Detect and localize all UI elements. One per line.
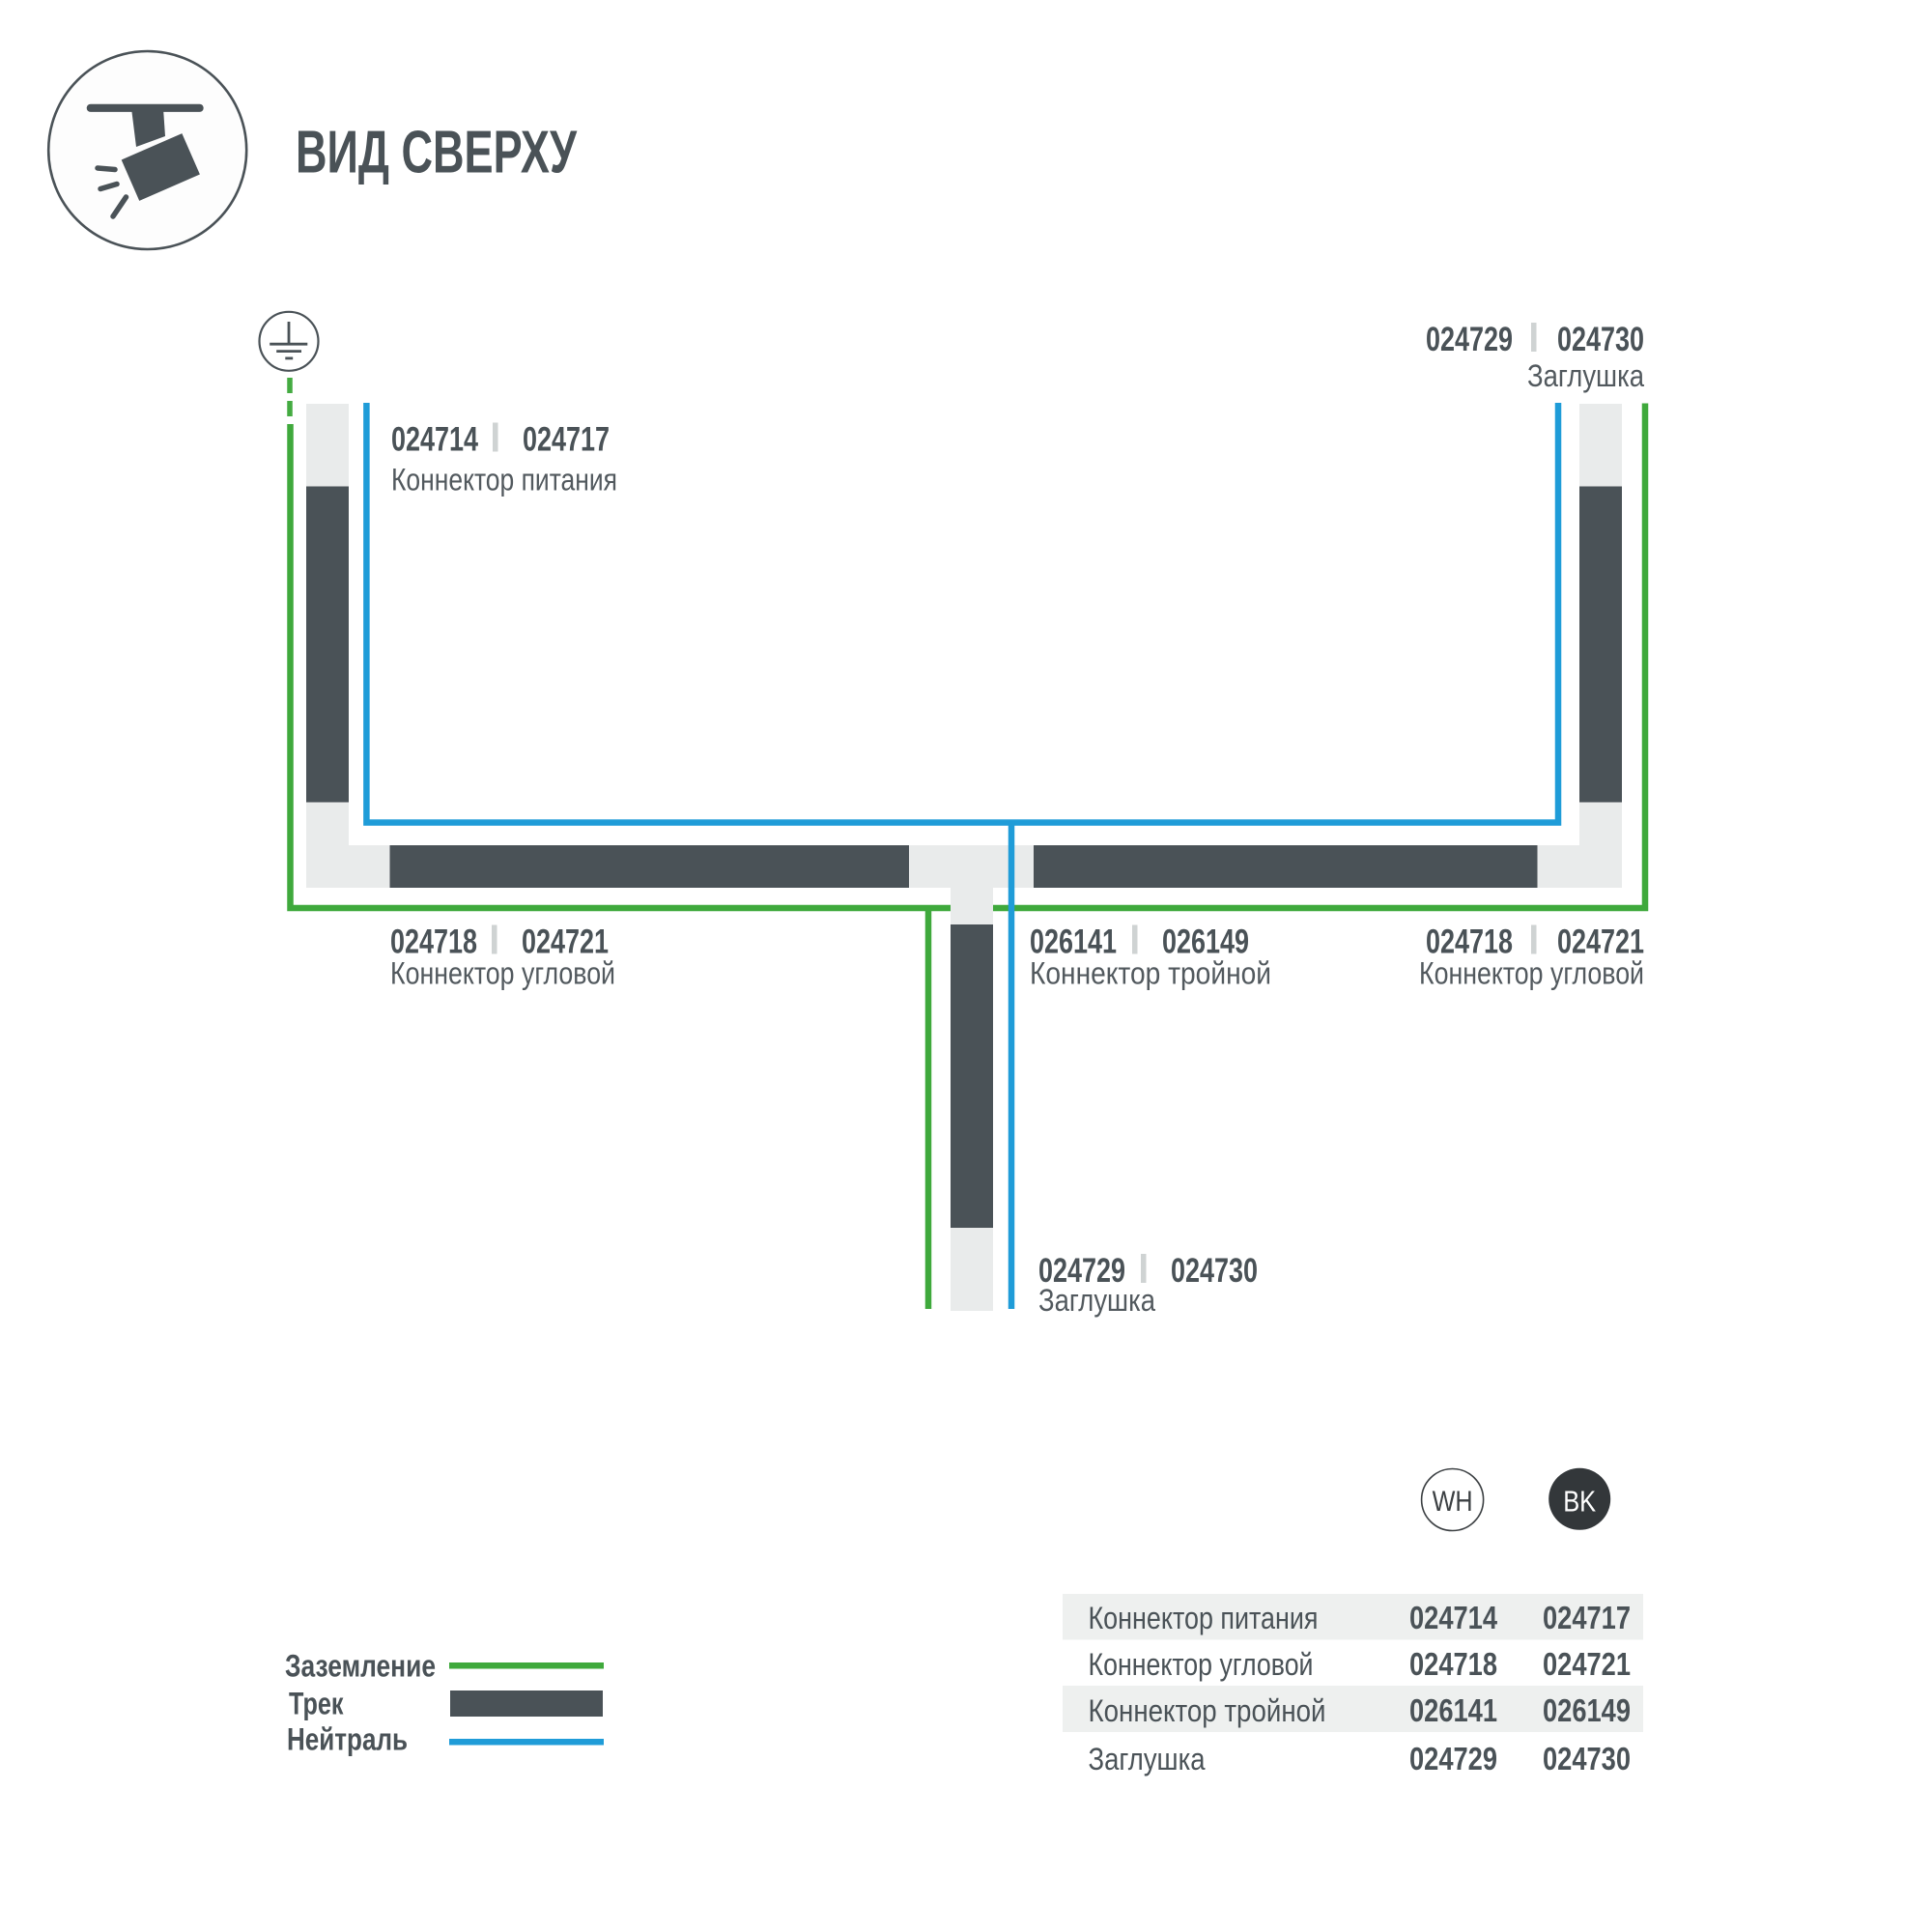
svg-text:024718: 024718	[1409, 1646, 1497, 1682]
svg-text:Коннектор питания: Коннектор питания	[1089, 1601, 1319, 1635]
svg-text:026141: 026141	[1409, 1692, 1497, 1728]
svg-text:Коннектор угловой: Коннектор угловой	[390, 956, 615, 991]
svg-text:024717: 024717	[523, 421, 610, 459]
svg-text:024729: 024729	[1426, 321, 1513, 358]
svg-text:WH: WH	[1433, 1486, 1473, 1518]
svg-text:026149: 026149	[1543, 1692, 1631, 1728]
svg-text:Коннектор угловой: Коннектор угловой	[1419, 956, 1644, 991]
svg-text:Коннектор тройной: Коннектор тройной	[1030, 956, 1271, 991]
svg-text:024730: 024730	[1557, 321, 1644, 358]
svg-text:024714: 024714	[1409, 1600, 1498, 1635]
svg-text:Трек: Трек	[289, 1687, 344, 1721]
svg-text:024714: 024714	[391, 421, 478, 459]
svg-text:024717: 024717	[1543, 1600, 1631, 1635]
svg-text:Нейтраль: Нейтраль	[287, 1722, 408, 1757]
svg-text:Коннектор угловой: Коннектор угловой	[1089, 1647, 1314, 1682]
svg-text:Коннектор питания: Коннектор питания	[391, 463, 617, 497]
svg-text:BK: BK	[1563, 1485, 1596, 1519]
svg-text:024730: 024730	[1171, 1252, 1258, 1290]
svg-text:Заглушка: Заглушка	[1089, 1742, 1207, 1776]
svg-text:024730: 024730	[1543, 1741, 1631, 1776]
svg-text:Заглушка: Заглушка	[1038, 1283, 1156, 1318]
svg-text:024721: 024721	[1543, 1646, 1631, 1682]
svg-text:ВИД СВЕРХУ: ВИД СВЕРХУ	[296, 119, 578, 185]
svg-text:Заземление: Заземление	[285, 1649, 436, 1684]
svg-text:024729: 024729	[1409, 1741, 1497, 1776]
svg-text:Коннектор тройной: Коннектор тройной	[1089, 1693, 1326, 1728]
svg-text:Заглушка: Заглушка	[1527, 358, 1645, 393]
